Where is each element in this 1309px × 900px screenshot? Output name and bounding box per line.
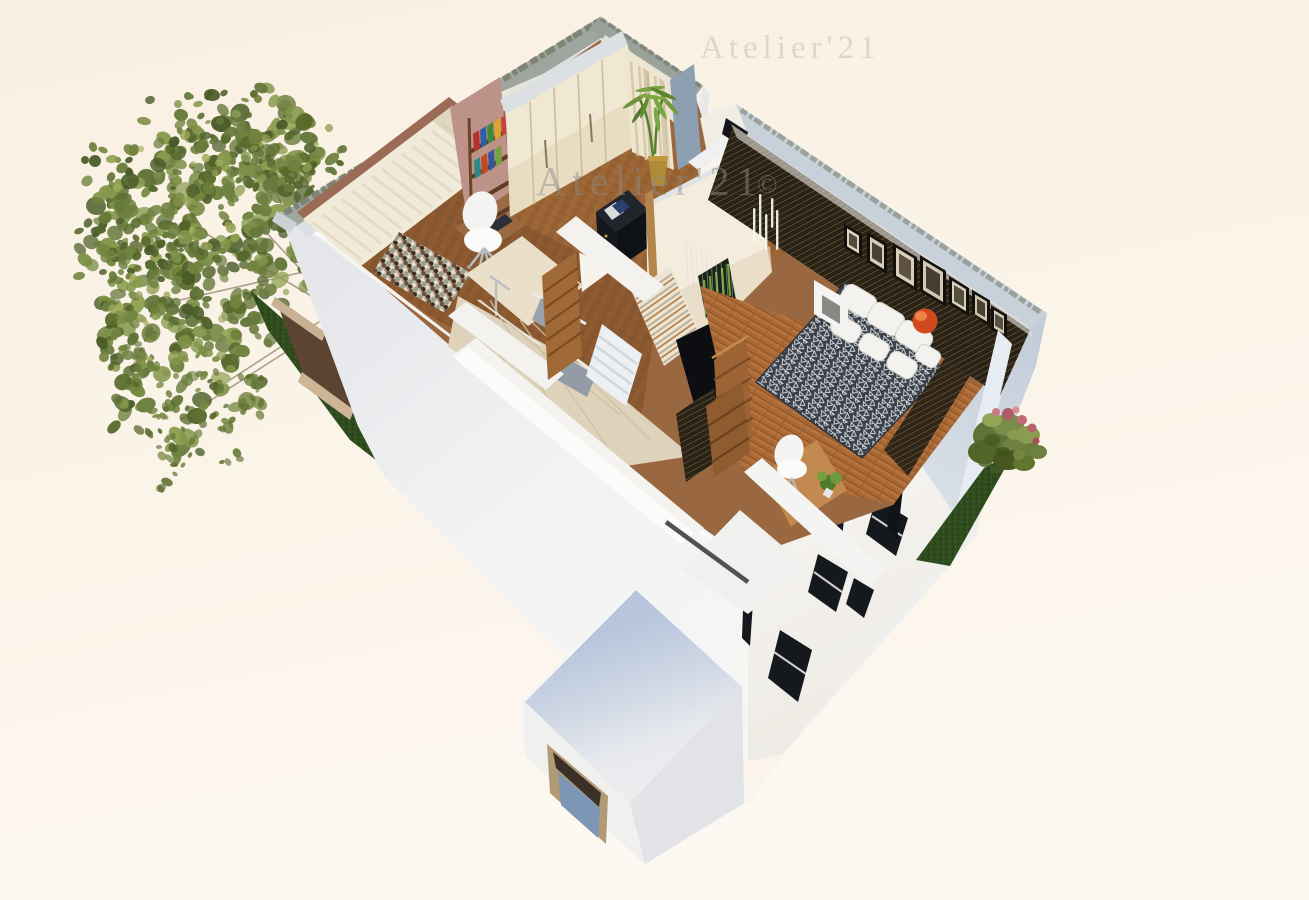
svg-text:Atelier'21: Atelier'21 — [536, 158, 763, 204]
svg-text:Atelier'21: Atelier'21 — [700, 30, 881, 66]
svg-text:©: © — [757, 169, 778, 199]
